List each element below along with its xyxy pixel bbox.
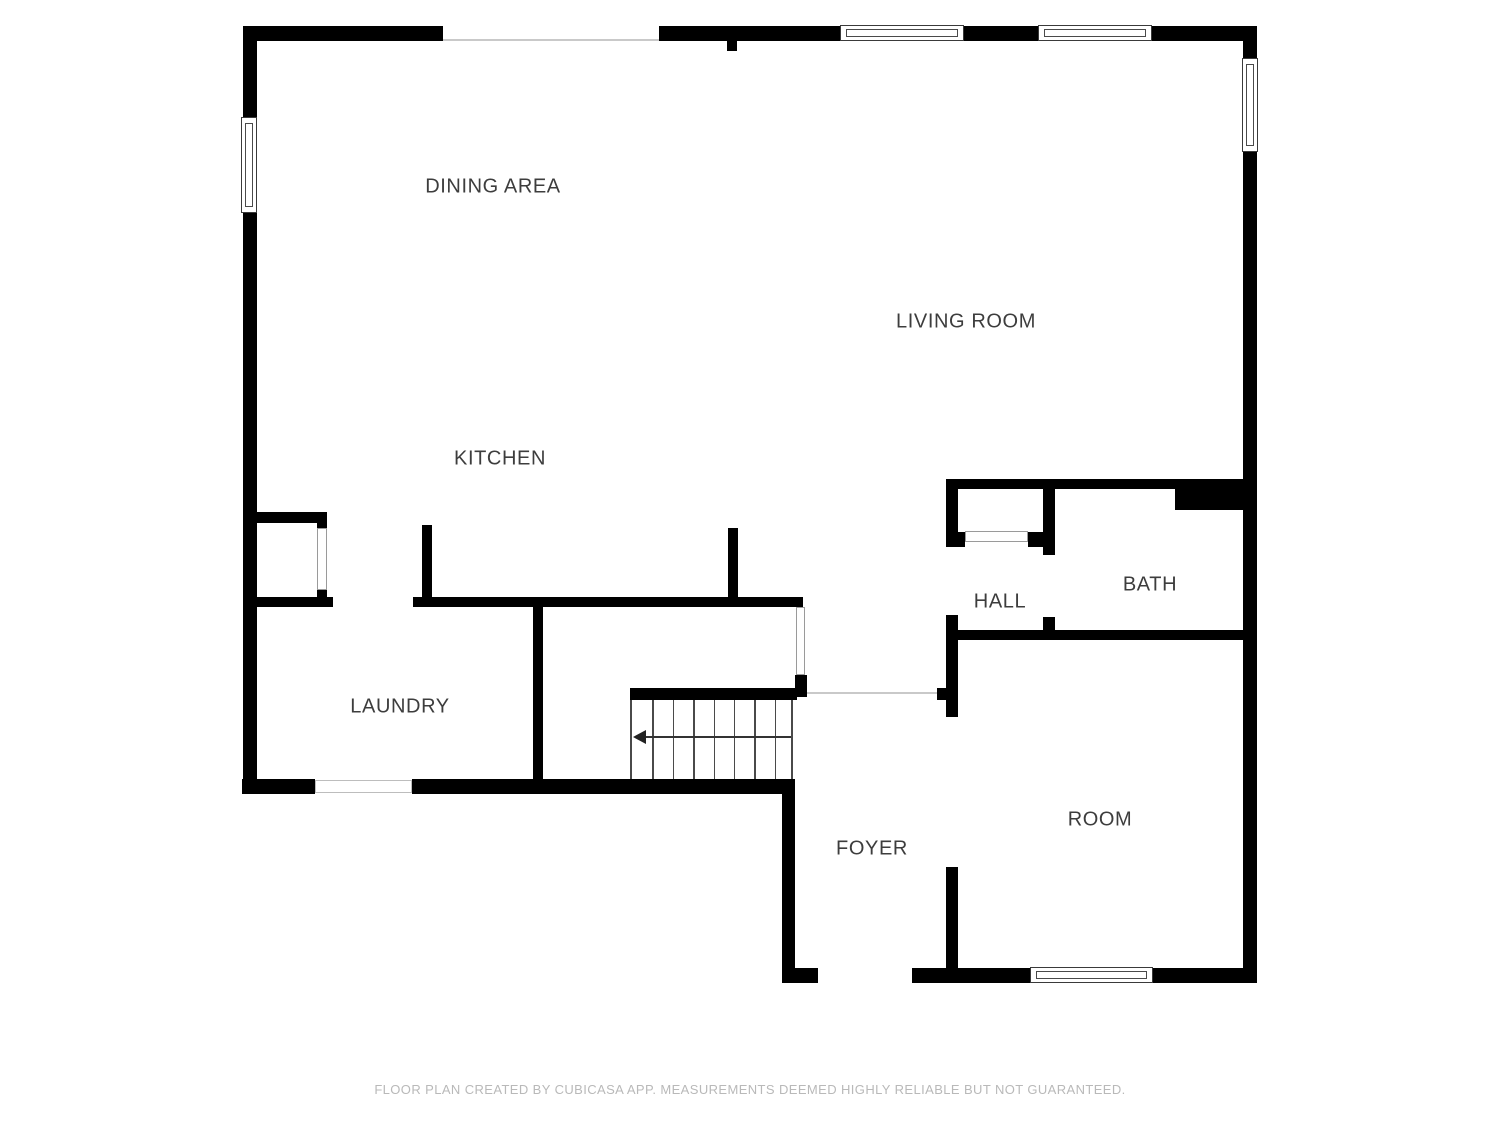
room-labels: DINING AREALIVING ROOMKITCHENHALLBATHLAU… <box>0 0 1500 1125</box>
room-label-laundry: LAUNDRY <box>350 696 449 719</box>
room-label-room: ROOM <box>1068 809 1133 832</box>
room-label-foyer: FOYER <box>836 838 908 861</box>
room-label-living-room: LIVING ROOM <box>896 311 1036 334</box>
room-label-bath: BATH <box>1123 574 1177 597</box>
footer-disclaimer: FLOOR PLAN CREATED BY CUBICASA APP. MEAS… <box>0 1082 1500 1097</box>
room-label-dining-area: DINING AREA <box>425 176 561 199</box>
room-label-kitchen: KITCHEN <box>454 448 546 471</box>
room-label-hall: HALL <box>974 591 1026 614</box>
floor-plan: DINING AREALIVING ROOMKITCHENHALLBATHLAU… <box>0 0 1500 1125</box>
